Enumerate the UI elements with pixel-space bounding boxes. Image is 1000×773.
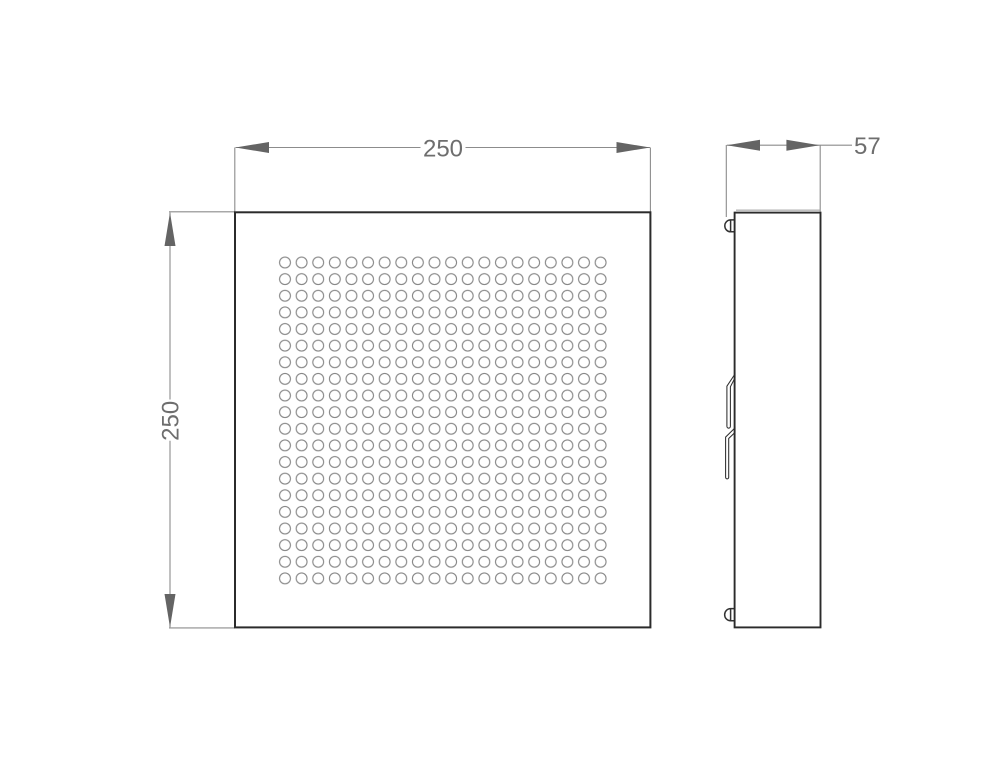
svg-text:250: 250: [423, 135, 463, 162]
svg-text:57: 57: [854, 133, 881, 160]
svg-text:250: 250: [157, 401, 184, 441]
